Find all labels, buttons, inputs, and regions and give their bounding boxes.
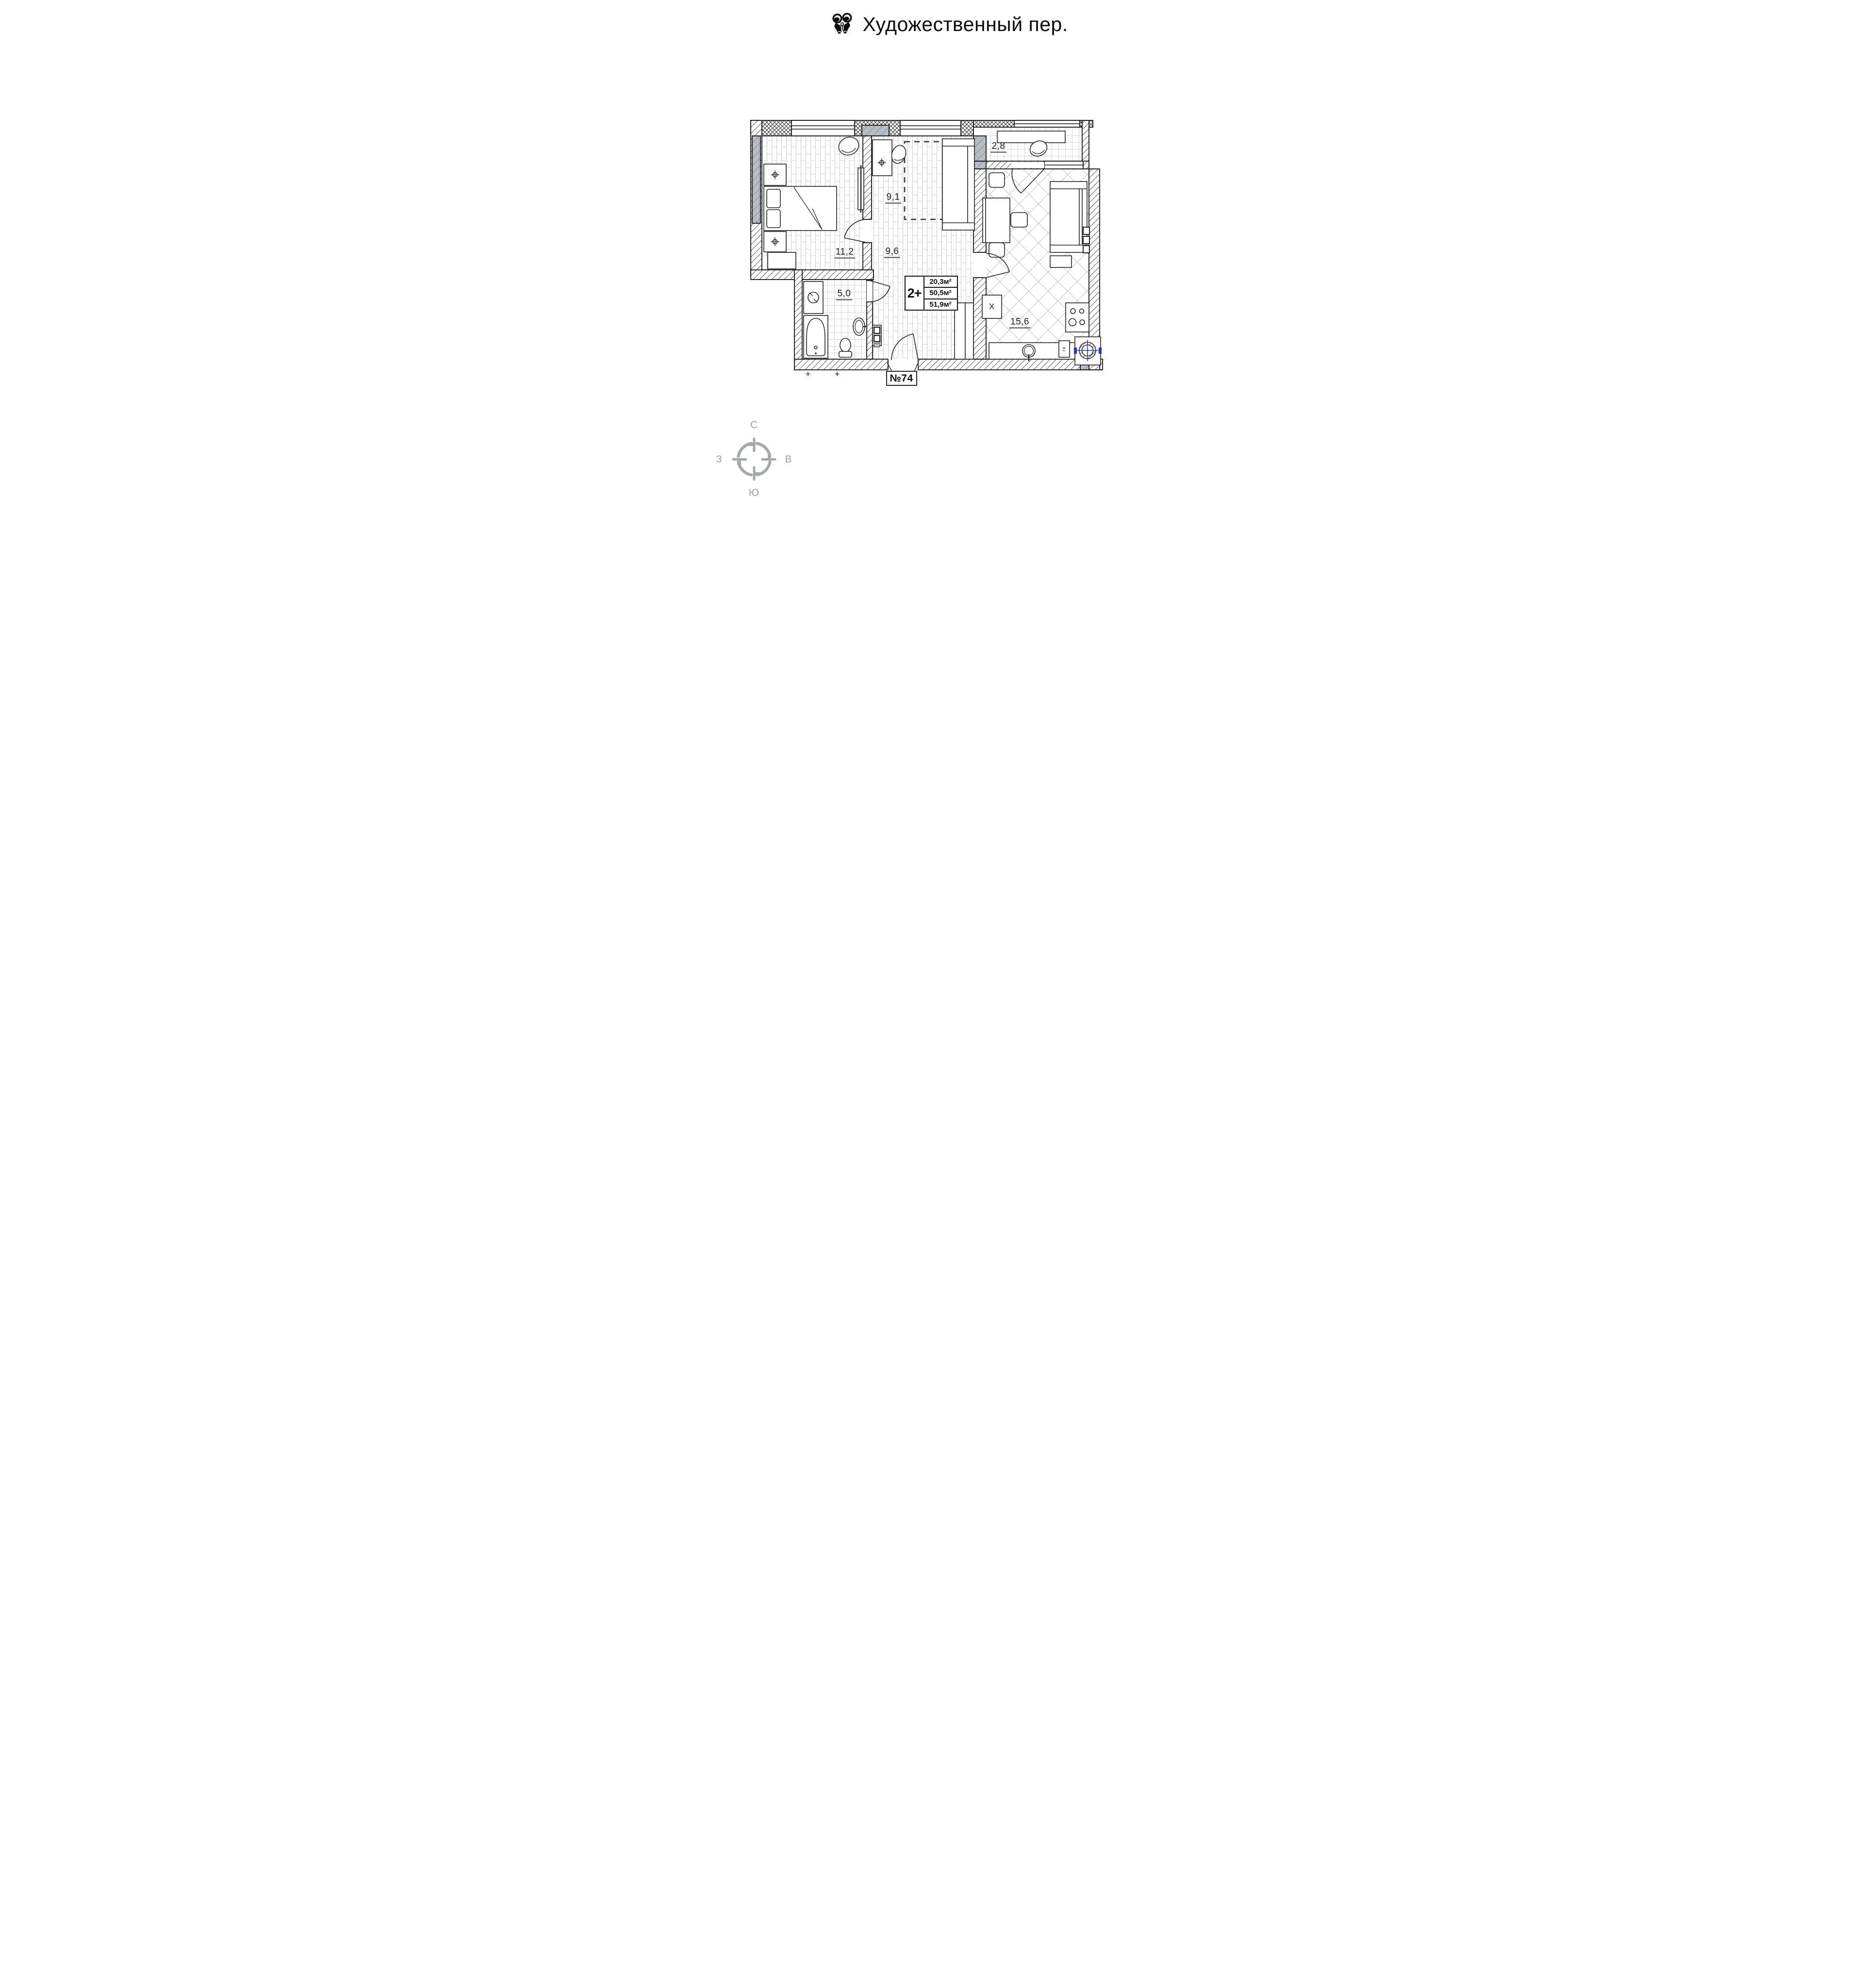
apartment-info-box: 2+ 20,3м² 50,5м² 51,9м²: [905, 276, 958, 311]
balcony-door-opening: [1011, 162, 1044, 168]
room-label-study: 9,1: [885, 193, 902, 204]
bathroom-door-opening: [867, 281, 873, 302]
coffee-table: [1050, 256, 1072, 267]
floorplan-drawing: [699, 0, 1165, 497]
balcony-console: [997, 131, 1065, 143]
desk: [873, 140, 892, 176]
living-sofa: [1050, 182, 1087, 252]
room-label-bedroom: 11,2: [834, 248, 856, 259]
window-kitchen-balcony: [1044, 161, 1083, 169]
wall-bedroom-study-2: [863, 243, 872, 270]
fridge-label: X: [989, 302, 994, 312]
compass-tick-south: [754, 467, 760, 480]
area-without-balcony: 50,5м²: [924, 287, 957, 298]
compass-west: З: [716, 454, 722, 465]
window-balcony-top: [1014, 120, 1080, 127]
wall-bottom: [794, 359, 1103, 370]
total-area: 51,9м²: [924, 298, 957, 310]
toilet: [839, 338, 852, 357]
bedroom-mirror: [858, 165, 864, 213]
hall-closet: [955, 303, 973, 359]
compass-south: Ю: [749, 487, 759, 497]
dining-chair-bottom: [989, 243, 1005, 257]
wall-study-balcony: [973, 136, 986, 161]
compass-north: С: [750, 419, 758, 431]
wall-bathroom-left: [794, 270, 802, 370]
washing-machine: [804, 282, 823, 314]
apartment-number: №74: [886, 371, 917, 386]
bed: [764, 186, 837, 231]
dining-chair-right: [1011, 213, 1027, 227]
bathtub: [804, 315, 828, 358]
binoculars-icon: [831, 13, 853, 35]
compass-rose: [733, 439, 775, 480]
room-label-hallway: 9,6: [884, 247, 901, 258]
compass-tick-east: [762, 453, 775, 460]
concrete-block: [974, 161, 986, 169]
nightstand-bottom: [764, 232, 786, 252]
window-study-top: [900, 120, 961, 136]
nightstand-top: [764, 164, 786, 185]
floorplan-page: Художественный пер. 2,8 9,1 11,2 9,6 5,0…: [699, 0, 1165, 497]
dresser: [768, 252, 796, 269]
vent-shaft: [1074, 337, 1102, 365]
wall-bedroom-bottom: [751, 270, 874, 280]
gas-boiler-label: гк: [1061, 347, 1067, 351]
shoe-cabinet: [873, 325, 881, 347]
compass-east: В: [785, 454, 791, 465]
living-area: 20,3м²: [924, 277, 957, 287]
compass-tick-west: [733, 460, 746, 466]
concrete-pier: [862, 125, 889, 136]
entrance-opening: [888, 358, 918, 371]
room-label-bathroom: 5,0: [836, 289, 853, 300]
window-bedroom-top: [791, 120, 855, 136]
street-title: Художественный пер.: [863, 12, 1068, 37]
wall-radiators: [1083, 227, 1089, 253]
room-label-balcony: 2,8: [990, 142, 1007, 153]
room-label-kitchen-living: 15,6: [1009, 317, 1031, 329]
window-bedroom-left: [752, 136, 760, 223]
rooms-type: 2+: [906, 277, 924, 310]
plumbing-marks: [806, 372, 839, 376]
compass-tick-north: [748, 439, 754, 451]
stove: [1066, 303, 1089, 332]
dining-chair-top: [989, 173, 1005, 187]
study-sofa: [942, 139, 974, 230]
